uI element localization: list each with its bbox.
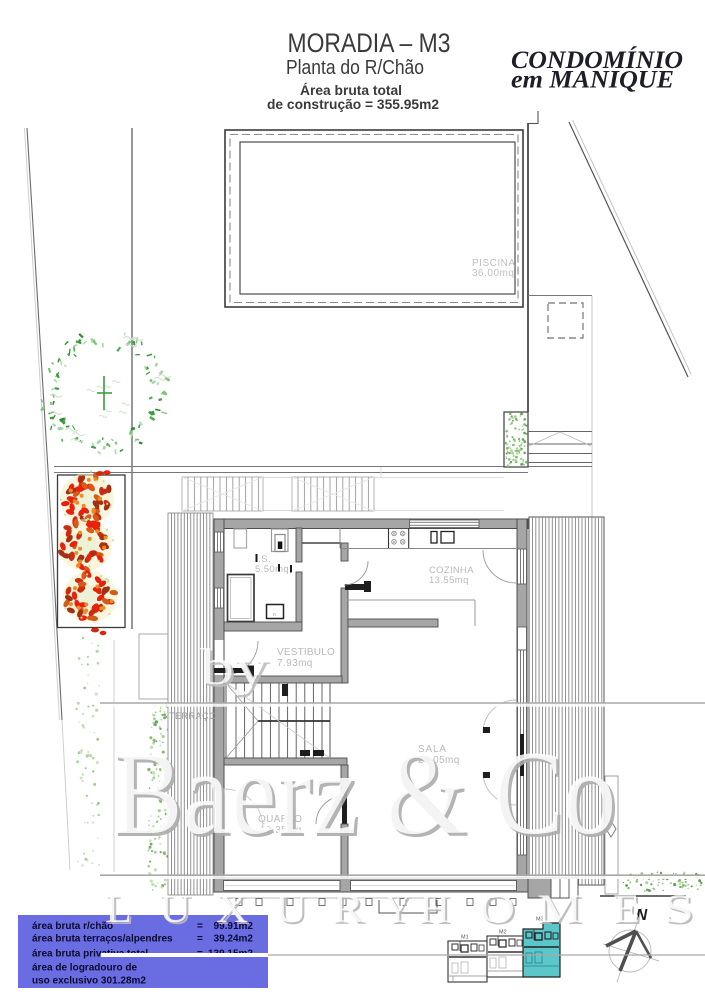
svg-text:R: R: [332, 886, 364, 931]
svg-text:H: H: [419, 886, 450, 931]
svg-text:área bruta terraços/alpendres: área bruta terraços/alpendres: [32, 934, 173, 945]
svg-text:MORADIA – M3: MORADIA – M3: [288, 28, 451, 58]
svg-text:O: O: [479, 886, 515, 931]
svg-text:em MANIQUE: em MANIQUE: [511, 67, 674, 94]
svg-text:5.50mq: 5.50mq: [255, 564, 289, 575]
svg-text:TERRAÇO: TERRAÇO: [169, 711, 217, 721]
svg-text:39.24m2: 39.24m2: [214, 934, 254, 945]
svg-text:E: E: [613, 886, 640, 931]
svg-text:U: U: [159, 886, 191, 931]
svg-text:uso exclusivo 301.28m2: uso exclusivo 301.28m2: [32, 976, 146, 987]
svg-text:U: U: [275, 886, 307, 931]
svg-text:36.00mq: 36.00mq: [472, 268, 514, 279]
svg-text:M1: M1: [461, 935, 469, 941]
svg-text:Planta do R/Chão: Planta do R/Chão: [286, 57, 424, 79]
svg-text:X: X: [216, 886, 248, 931]
svg-text:n: n: [273, 612, 276, 618]
svg-text:M: M: [537, 886, 582, 931]
svg-text:=: =: [197, 934, 203, 945]
svg-text:7.93mq: 7.93mq: [277, 658, 313, 669]
svg-text:13.55mq: 13.55mq: [429, 575, 469, 586]
svg-text:área de logradouro de: área de logradouro de: [32, 963, 137, 974]
svg-text:L: L: [105, 886, 132, 931]
svg-text:VESTIBULO: VESTIBULO: [277, 647, 335, 658]
svg-text:Y: Y: [384, 886, 411, 931]
svg-text:de construção = 355.95m2: de construção = 355.95m2: [267, 96, 439, 112]
svg-text:Baerz & Co: Baerz & Co: [112, 726, 616, 859]
svg-text:área bruta r/chão: área bruta r/chão: [32, 921, 113, 932]
svg-text:by: by: [200, 639, 268, 696]
svg-text:=: =: [197, 921, 203, 932]
svg-text:S: S: [663, 886, 694, 931]
